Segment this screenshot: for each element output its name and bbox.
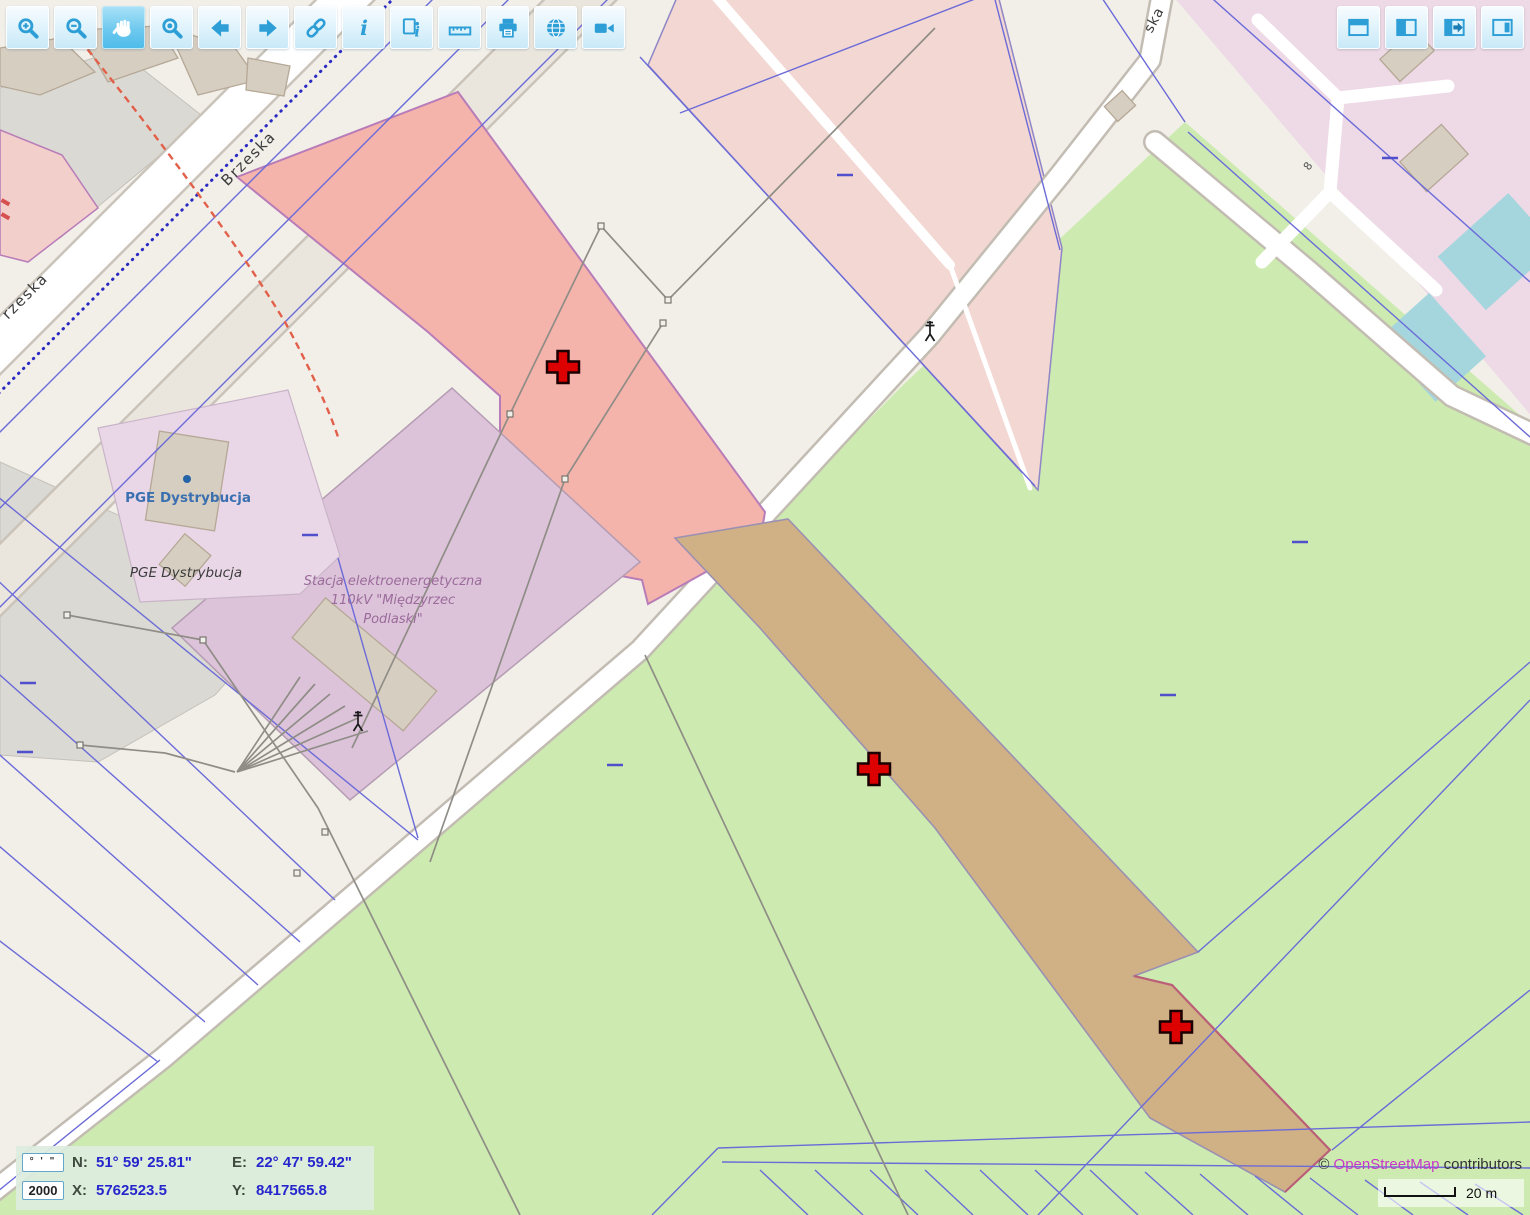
panel-right-icon: [1490, 15, 1516, 41]
gis-map-viewer: Brzeska rzeska ska 8 PGE Dystrybucja PGE…: [0, 0, 1530, 1215]
y-value: 8417565.8: [256, 1182, 327, 1199]
toggle-top-panel-button[interactable]: [1337, 6, 1380, 49]
identify-button[interactable]: i: [390, 6, 433, 49]
link-button[interactable]: [294, 6, 337, 49]
x-label: X:: [72, 1182, 96, 1199]
panel-arrow-right-icon: [1442, 15, 1468, 41]
info-icon: i: [351, 15, 377, 41]
toggle-right-panel-button[interactable]: [1481, 6, 1524, 49]
east-label: E:: [232, 1154, 256, 1171]
panel-left-icon: [1394, 15, 1420, 41]
copyright-symbol: ©: [1318, 1156, 1329, 1173]
scale-bar-label: 20 m: [1466, 1185, 1497, 1201]
scale-input[interactable]: [22, 1181, 64, 1200]
ruler-icon: [447, 15, 473, 41]
next-view-button[interactable]: [246, 6, 289, 49]
map-attribution: © OpenStreetMap contributors: [1318, 1156, 1522, 1173]
coordinate-row-projected: X: 5762523.5 Y: 8417565.8: [16, 1176, 374, 1204]
arrow-left-icon: [207, 15, 233, 41]
magnifier-plus-icon: [15, 15, 41, 41]
substation-label-line1: Stacja elektroenergetyczna: [304, 574, 483, 589]
scale-bar: 20 m: [1378, 1179, 1524, 1207]
east-value: 22° 47' 59.42": [256, 1154, 352, 1171]
previous-view-button[interactable]: [198, 6, 241, 49]
hand-icon: [111, 15, 137, 41]
svg-text:i: i: [414, 24, 419, 40]
zoom-in-button[interactable]: [6, 6, 49, 49]
pge-area-label: PGE Dystrybucja: [130, 565, 242, 581]
coordinate-panel: ° ' " N: 51° 59' 25.81" E: 22° 47' 59.42…: [16, 1146, 374, 1210]
pge-poi-dot: [183, 475, 191, 483]
print-button[interactable]: [486, 6, 529, 49]
map-canvas[interactable]: Brzeska rzeska ska 8 PGE Dystrybucja PGE…: [0, 0, 1530, 1215]
panel-top-icon: [1346, 15, 1372, 41]
video-camera-icon: [591, 15, 617, 41]
layout-toolbar: [1337, 6, 1524, 49]
svg-text:i: i: [360, 16, 368, 40]
video-button[interactable]: [582, 6, 625, 49]
y-label: Y:: [232, 1182, 256, 1199]
substation-label-line3: Podlaski": [363, 612, 423, 627]
arrow-right-icon: [255, 15, 281, 41]
chain-link-icon: [303, 15, 329, 41]
info-button[interactable]: i: [342, 6, 385, 49]
zoom-out-button[interactable]: [54, 6, 97, 49]
magnifier-minus-icon: [63, 15, 89, 41]
substation-label-line2: 110kV "Międzyrzec: [331, 593, 455, 608]
coordinate-row-geographic: ° ' " N: 51° 59' 25.81" E: 22° 47' 59.42…: [16, 1148, 374, 1176]
pan-button[interactable]: [102, 6, 145, 49]
pge-poi-label: PGE Dystrybucja: [125, 490, 251, 506]
osm-link[interactable]: OpenStreetMap: [1334, 1156, 1440, 1173]
measure-button[interactable]: [438, 6, 481, 49]
toggle-left-panel-button[interactable]: [1385, 6, 1428, 49]
collapse-panel-button[interactable]: [1433, 6, 1476, 49]
scale-bar-line: [1384, 1187, 1456, 1197]
main-toolbar: i i: [6, 6, 625, 49]
dms-format-button[interactable]: ° ' ": [22, 1153, 64, 1172]
x-value: 5762523.5: [96, 1182, 232, 1199]
globe-icon: [543, 15, 569, 41]
attribution-suffix: contributors: [1444, 1156, 1522, 1173]
north-label: N:: [72, 1154, 96, 1171]
printer-icon: [495, 15, 521, 41]
zoom-window-button[interactable]: [150, 6, 193, 49]
north-value: 51° 59' 25.81": [96, 1154, 232, 1171]
magnifier-window-icon: [159, 15, 185, 41]
overview-button[interactable]: [534, 6, 577, 49]
identify-page-icon: i: [399, 15, 425, 41]
